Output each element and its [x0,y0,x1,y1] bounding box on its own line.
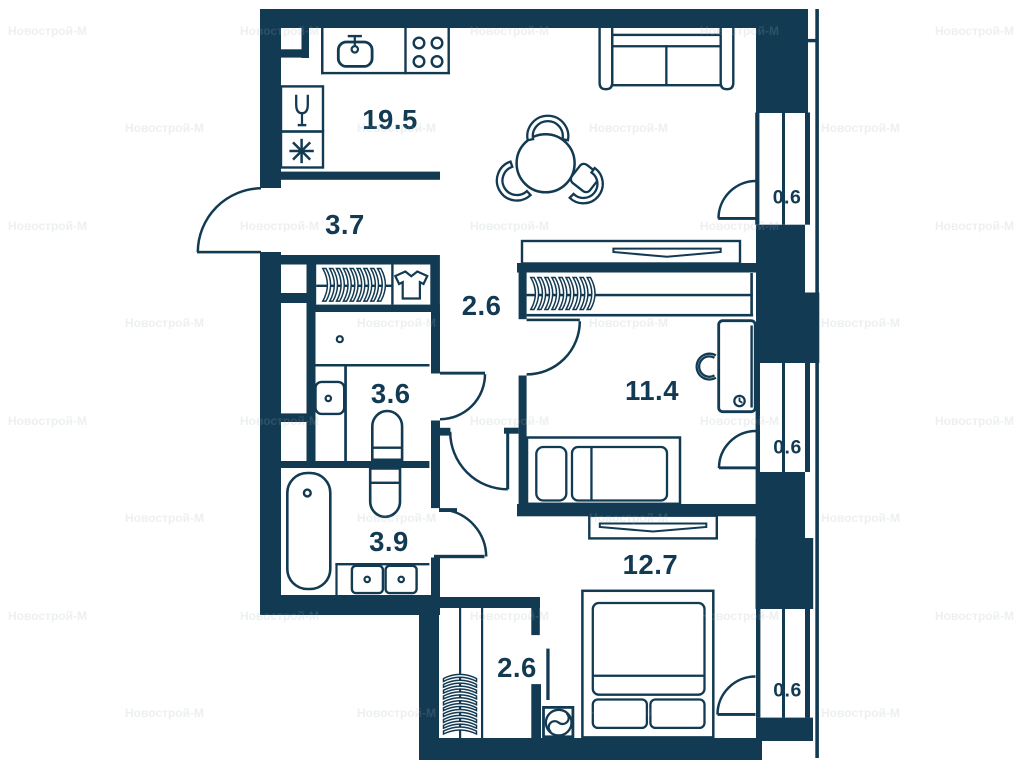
svg-text:3.9: 3.9 [369,526,409,557]
svg-text:Новострой-М: Новострой-М [821,316,900,330]
svg-text:2.6: 2.6 [497,652,537,683]
svg-text:Новострой-М: Новострой-М [125,121,204,135]
svg-text:Новострой-М: Новострой-М [8,24,87,38]
svg-text:Новострой-М: Новострой-М [589,121,668,135]
svg-text:Новострой-М: Новострой-М [700,609,779,623]
svg-text:Новострой-М: Новострой-М [470,24,549,38]
svg-text:3.7: 3.7 [325,209,365,240]
svg-text:Новострой-М: Новострой-М [8,414,87,428]
svg-text:Новострой-М: Новострой-М [240,414,319,428]
svg-text:Новострой-М: Новострой-М [589,706,668,720]
svg-text:0.6: 0.6 [773,680,802,702]
svg-text:Новострой-М: Новострой-М [240,24,319,38]
svg-text:12.7: 12.7 [623,549,679,580]
svg-text:Новострой-М: Новострой-М [125,316,204,330]
svg-text:Новострой-М: Новострой-М [240,609,319,623]
svg-text:Новострой-М: Новострой-М [470,609,549,623]
svg-text:Новострой-М: Новострой-М [240,219,319,233]
svg-text:Новострой-М: Новострой-М [589,316,668,330]
svg-text:Новострой-М: Новострой-М [821,511,900,525]
svg-text:Новострой-М: Новострой-М [470,219,549,233]
svg-text:Новострой-М: Новострой-М [935,609,1014,623]
svg-text:Новострой-М: Новострой-М [589,511,668,525]
svg-text:Новострой-М: Новострой-М [357,706,436,720]
svg-text:Новострой-М: Новострой-М [935,414,1014,428]
svg-text:Новострой-М: Новострой-М [700,24,779,38]
svg-text:Новострой-М: Новострой-М [935,24,1014,38]
svg-text:Новострой-М: Новострой-М [357,511,436,525]
svg-text:3.6: 3.6 [371,378,411,409]
svg-text:Новострой-М: Новострой-М [357,316,436,330]
svg-text:Новострой-М: Новострой-М [821,121,900,135]
svg-text:Новострой-М: Новострой-М [357,121,436,135]
svg-text:Новострой-М: Новострой-М [8,609,87,623]
svg-text:Новострой-М: Новострой-М [935,219,1014,233]
svg-text:11.4: 11.4 [625,375,679,406]
svg-text:Новострой-М: Новострой-М [700,414,779,428]
svg-text:Новострой-М: Новострой-М [470,414,549,428]
svg-text:Новострой-М: Новострой-М [700,219,779,233]
svg-text:Новострой-М: Новострой-М [8,219,87,233]
svg-text:2.6: 2.6 [462,290,502,321]
svg-text:Новострой-М: Новострой-М [125,706,204,720]
svg-text:0.6: 0.6 [773,437,802,459]
svg-text:0.6: 0.6 [773,187,802,209]
svg-text:Новострой-М: Новострой-М [125,511,204,525]
svg-text:Новострой-М: Новострой-М [821,706,900,720]
